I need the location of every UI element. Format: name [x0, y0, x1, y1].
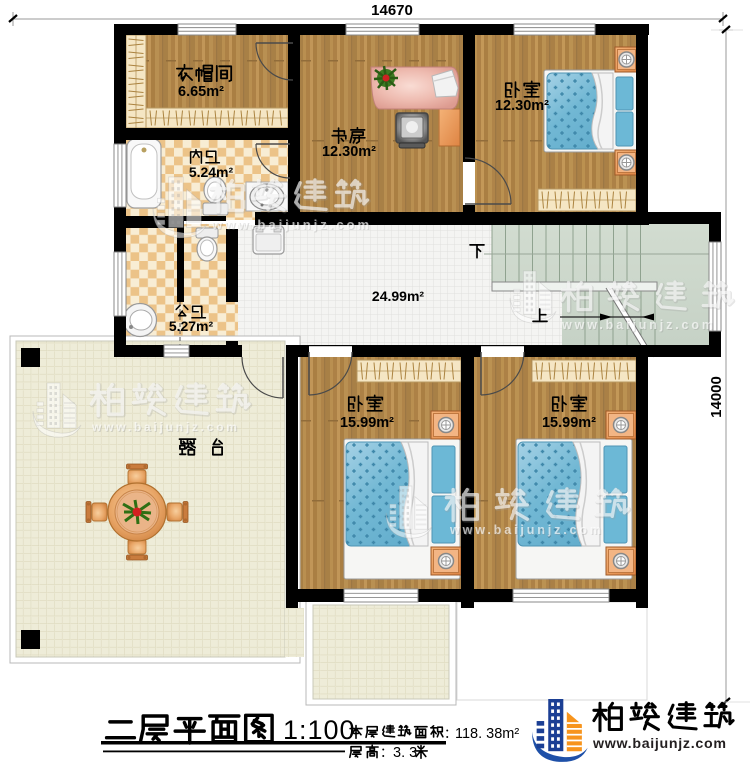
- svg-text:www.baijunjz.com: www.baijunjz.com: [91, 420, 240, 434]
- svg-text:5.27m²: 5.27m²: [169, 318, 214, 334]
- svg-text:：: ：: [380, 745, 393, 760]
- svg-text:www.baijunjz.com: www.baijunjz.com: [592, 736, 727, 752]
- svg-text:12.30m²: 12.30m²: [322, 144, 376, 160]
- svg-text:118. 38m²: 118. 38m²: [455, 726, 519, 742]
- svg-text:3. 3: 3. 3: [393, 745, 417, 761]
- svg-text:14670: 14670: [371, 2, 413, 19]
- svg-text:1:100: 1:100: [283, 715, 356, 745]
- svg-text:12.30m²: 12.30m²: [495, 98, 549, 114]
- svg-text:15.99m²: 15.99m²: [340, 415, 394, 431]
- svg-text:www.baijunjz.com: www.baijunjz.com: [211, 217, 372, 232]
- svg-text:15.99m²: 15.99m²: [542, 415, 596, 431]
- svg-text:5.24m²: 5.24m²: [189, 164, 234, 180]
- svg-text:www.baijunjz.com: www.baijunjz.com: [561, 318, 716, 332]
- svg-text:6.65m²: 6.65m²: [178, 84, 224, 100]
- svg-text:www.baijunjz.com: www.baijunjz.com: [449, 523, 604, 537]
- svg-text:24.99m²: 24.99m²: [372, 288, 424, 304]
- svg-text:14000: 14000: [708, 376, 725, 418]
